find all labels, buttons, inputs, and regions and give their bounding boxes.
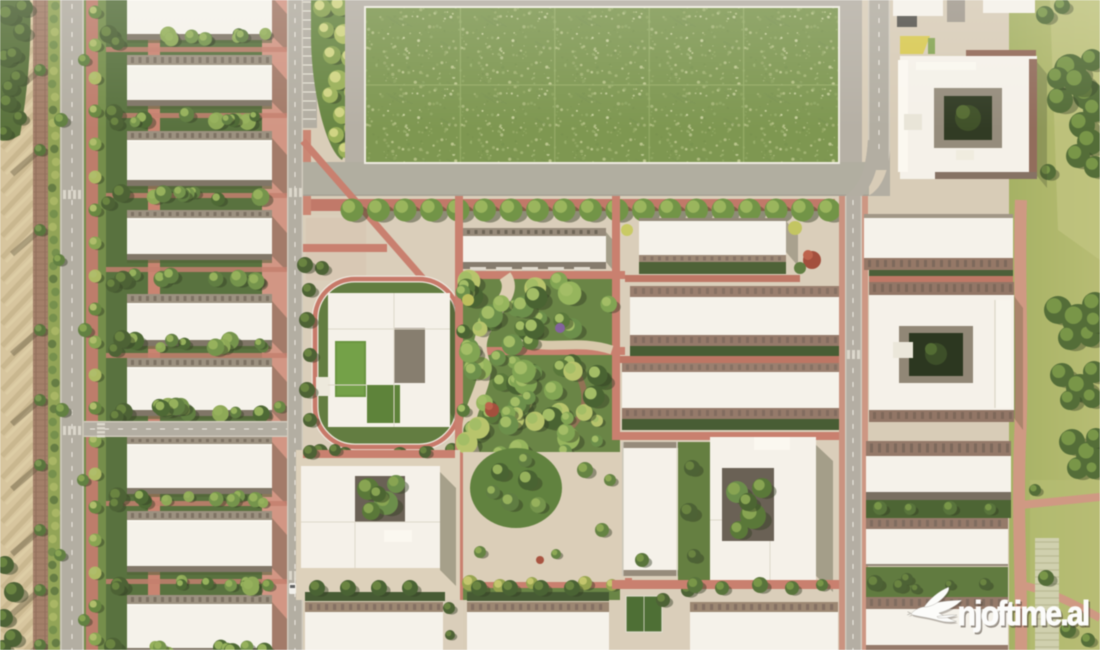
svg-text:njoftime.al: njoftime.al	[958, 595, 1089, 633]
